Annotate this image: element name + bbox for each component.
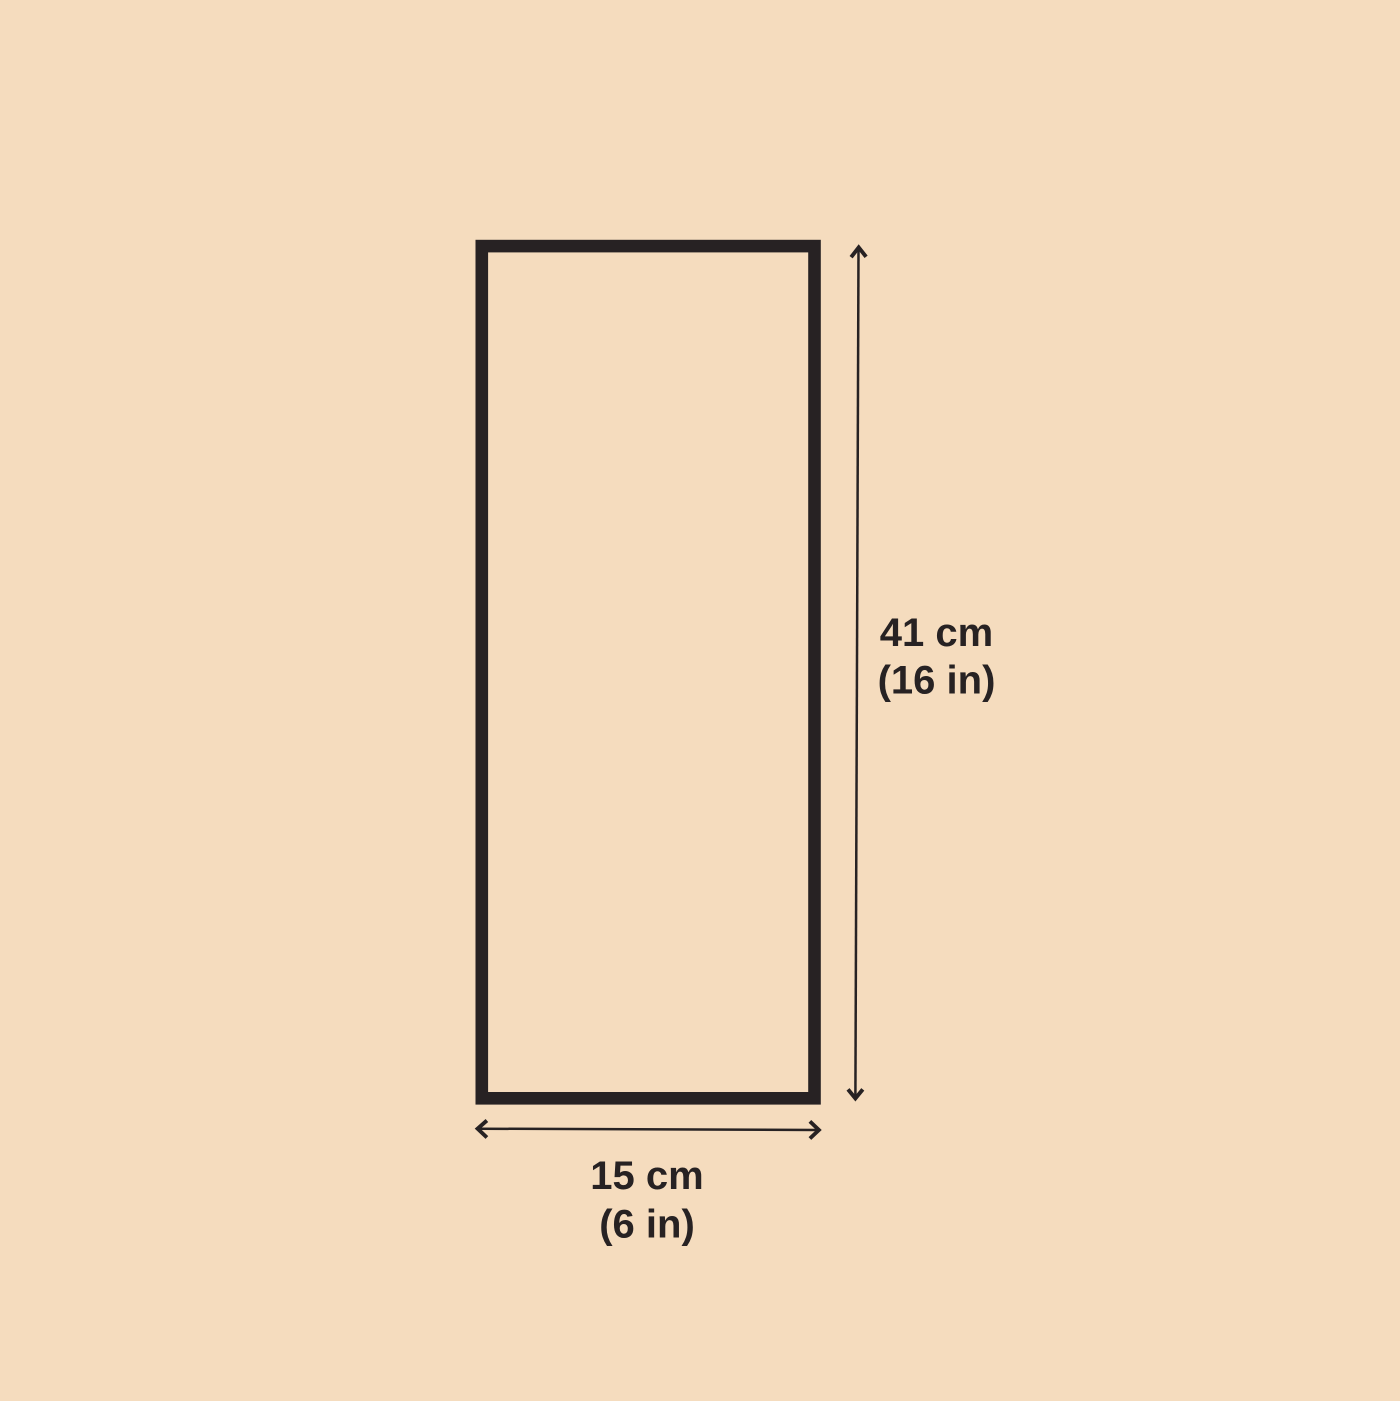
svg-text:(6 in): (6 in) bbox=[599, 1203, 695, 1247]
svg-text:15 cm: 15 cm bbox=[590, 1154, 703, 1198]
svg-text:41 cm: 41 cm bbox=[880, 611, 993, 655]
svg-text:(16 in): (16 in) bbox=[878, 659, 996, 703]
